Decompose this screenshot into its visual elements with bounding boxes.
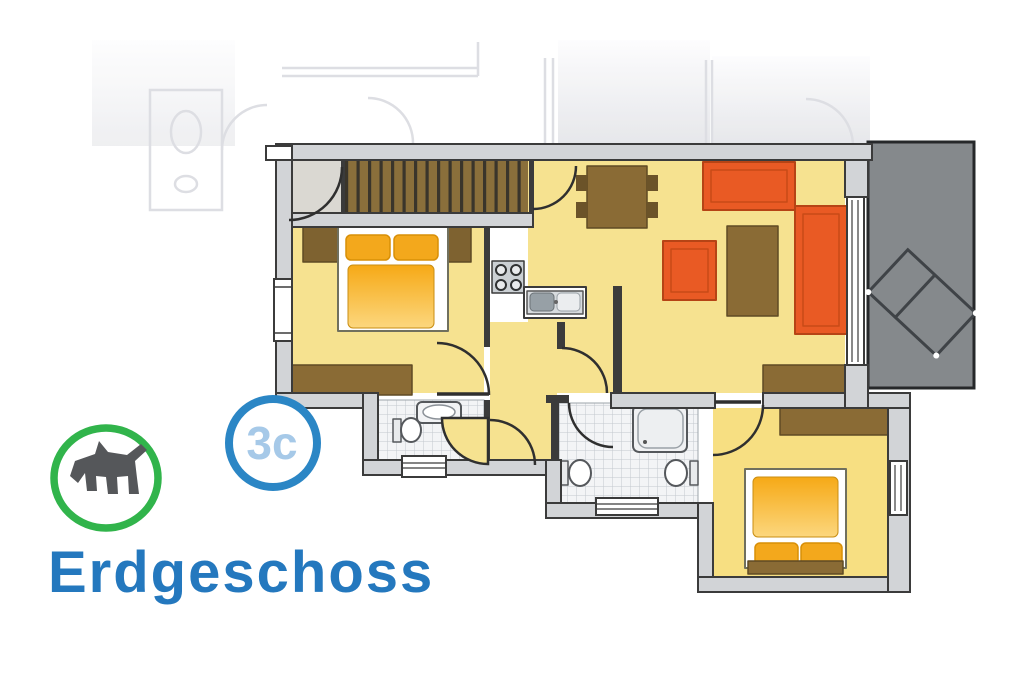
pillow	[394, 235, 438, 260]
bedside-cabinet	[303, 227, 339, 262]
chair	[576, 202, 587, 218]
floor-plan: 3c Erdgeschoss	[0, 0, 1024, 683]
apartment-number-badge: 3c	[229, 399, 317, 487]
entrance-floor	[292, 160, 341, 213]
floor-plan-image: 3c Erdgeschoss	[0, 0, 1024, 683]
window	[266, 146, 292, 160]
chair	[647, 175, 658, 191]
duvet	[348, 265, 434, 328]
bath-sink	[690, 461, 698, 485]
window	[847, 197, 864, 365]
toilet	[393, 419, 401, 442]
wardrobe	[292, 365, 412, 395]
floor-title: Erdgeschoss	[48, 540, 434, 605]
sideboard	[763, 365, 846, 394]
pillow	[346, 235, 390, 260]
chair	[576, 175, 587, 191]
hallway-floor	[490, 322, 557, 460]
chair	[647, 202, 658, 218]
pet-allowed-badge	[54, 428, 158, 528]
staircase	[345, 160, 529, 213]
terrace	[864, 142, 980, 388]
dining-table	[587, 166, 647, 228]
window	[890, 461, 907, 515]
bed-footboard	[748, 561, 843, 574]
apartment-number-label: 3c	[246, 417, 297, 469]
window	[274, 279, 292, 341]
wardrobe	[780, 406, 888, 435]
sofa	[703, 162, 795, 210]
coffee-table	[727, 226, 778, 316]
duvet	[753, 477, 838, 537]
